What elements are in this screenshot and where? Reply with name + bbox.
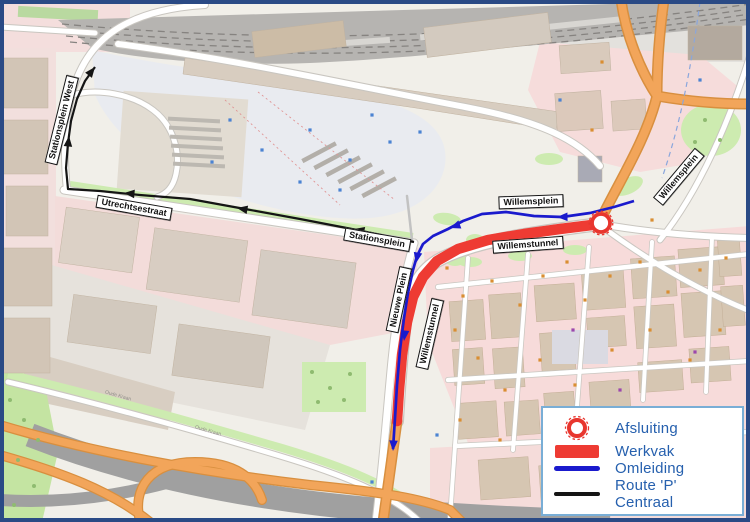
poi-dot <box>600 60 603 63</box>
poi-dot <box>565 260 568 263</box>
poi-dot <box>538 358 541 361</box>
poi-dot <box>498 438 501 441</box>
poi-dot <box>298 180 301 183</box>
poi-dot <box>348 158 351 161</box>
poi-dot <box>590 128 593 131</box>
legend-row-omleiding: Omleiding <box>551 460 734 477</box>
legend-row-route-p: Route 'P' Centraal <box>551 477 734 511</box>
legend-row-werkvak: Werkvak <box>551 443 734 460</box>
poi-dot <box>476 356 479 359</box>
poi-dot <box>698 268 701 271</box>
poi-dot <box>583 298 586 301</box>
poi-dot <box>490 279 493 282</box>
poi-dot <box>693 350 696 353</box>
werkvak-icon <box>551 445 603 458</box>
poi-dot <box>698 78 701 81</box>
legend-row-afsluiting: Afsluiting <box>551 413 734 443</box>
poi-dot <box>650 218 653 221</box>
poi-dot <box>724 256 727 259</box>
poi-dot <box>370 480 373 483</box>
poi-dot <box>503 388 506 391</box>
poi-dot <box>666 290 669 293</box>
poi-dot <box>718 328 721 331</box>
poi-dot <box>638 260 641 263</box>
legend: Afsluiting Werkvak Omleiding Route 'P' C… <box>541 406 744 516</box>
poi-dot <box>435 433 438 436</box>
poi-dot <box>538 203 541 206</box>
poi-dot <box>260 148 263 151</box>
route-p-icon <box>551 492 603 497</box>
legend-label-afsluiting: Afsluiting <box>615 420 678 437</box>
poi-dot <box>370 113 373 116</box>
poi-dot <box>453 328 456 331</box>
poi-dot <box>338 188 341 191</box>
poi-dot <box>228 118 231 121</box>
legend-label-omleiding: Omleiding <box>615 460 684 477</box>
poi-dot <box>608 274 611 277</box>
poi-dot <box>308 128 311 131</box>
poi-dot <box>461 294 464 297</box>
poi-dot <box>610 348 613 351</box>
poi-dot <box>558 98 561 101</box>
poi-dot <box>458 418 461 421</box>
poi-dot <box>541 274 544 277</box>
poi-dot <box>571 328 574 331</box>
poi-dot <box>648 328 651 331</box>
poi-dot <box>573 383 576 386</box>
poi-dot <box>445 266 448 269</box>
poi-dot <box>210 160 213 163</box>
poi-dot <box>388 140 391 143</box>
poi-dot <box>418 130 421 133</box>
legend-label-route-p: Route 'P' Centraal <box>615 477 734 511</box>
poi-dot <box>518 303 521 306</box>
afsluiting-icon <box>551 413 603 443</box>
map-frame: Stationsplein WestUtrechtsestraatStation… <box>0 0 750 522</box>
poi-dot <box>688 358 691 361</box>
poi-dot <box>618 388 621 391</box>
omleiding-icon <box>551 466 603 471</box>
legend-label-werkvak: Werkvak <box>615 443 674 460</box>
